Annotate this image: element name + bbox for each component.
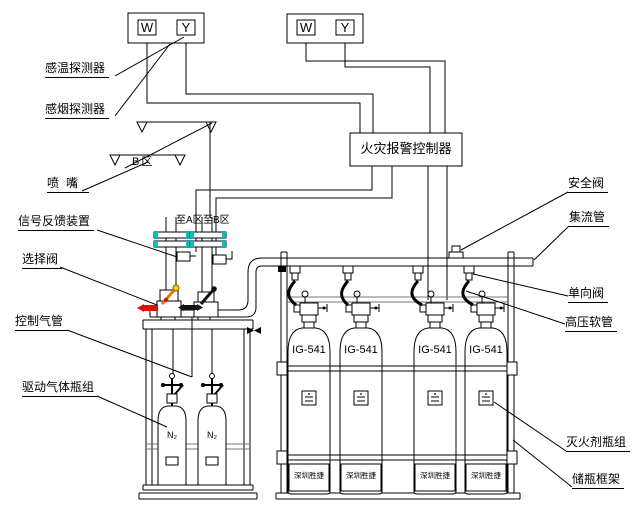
safety-valve xyxy=(449,246,463,258)
zone-b-label: B区 xyxy=(132,156,154,169)
control-tubes xyxy=(173,317,212,377)
callout-smoke-detector: 感烟探测器 xyxy=(45,103,109,119)
callout-signal-feedback: 信号反馈装置 xyxy=(18,215,94,231)
agent-cylinder-brand: 深圳胜捷 xyxy=(466,470,506,481)
zone-pipe-a xyxy=(154,217,196,290)
hp-hose xyxy=(289,281,296,305)
agent-cylinder-brand: 深圳胜捷 xyxy=(415,470,455,481)
hp-hose xyxy=(342,281,348,305)
callout-agent-cylinders: 灭火剂瓶组 xyxy=(566,436,630,452)
check-valve xyxy=(413,266,423,280)
selector-valve-a xyxy=(137,285,181,320)
callout-control-tube: 控制气管 xyxy=(15,315,67,331)
selector-valve-b xyxy=(178,286,218,320)
nozzle-manifolds xyxy=(110,122,216,217)
callout-safety-valve: 安全阀 xyxy=(568,177,608,193)
nozzle-icon xyxy=(110,155,120,165)
hp-hose xyxy=(412,281,422,305)
n2-cylinder-label: N₂ xyxy=(198,430,226,440)
signal-feedback-device xyxy=(177,252,190,261)
agent-cylinder-name: IG-541 xyxy=(414,344,456,356)
agent-cylinder-name: IG-541 xyxy=(465,344,507,356)
check-valve xyxy=(290,266,300,280)
check-valves-and-hoses xyxy=(289,266,474,305)
n2-valve xyxy=(161,374,183,407)
wiring xyxy=(147,35,447,300)
to-zone-b-label: 至B区 xyxy=(203,215,230,227)
n2-cylinder-label: N₂ xyxy=(158,430,186,440)
callout-cylinder-frame: 储瓶框架 xyxy=(572,473,624,489)
signal-feedback-device xyxy=(213,255,226,264)
controller-label: 火灾报警控制器 xyxy=(350,133,462,166)
agent-cylinder-name: IG-541 xyxy=(288,344,330,356)
nozzle-icon xyxy=(175,155,185,165)
heat-detector-symbol: W xyxy=(297,20,315,35)
smoke-detector-symbol: Y xyxy=(336,20,354,35)
callout-drive-gas-cylinders: 驱动气体瓶组 xyxy=(22,381,98,397)
nozzle-icon xyxy=(137,122,147,132)
heat-detector-symbol: W xyxy=(138,20,156,35)
agent-cylinder-brand: 深圳胜捷 xyxy=(289,470,329,481)
callout-nozzle: 喷嘴 xyxy=(47,177,89,193)
callout-hp-hose: 高压软管 xyxy=(565,316,617,332)
to-zone-a-label: 至A区 xyxy=(176,215,203,227)
callout-check-valve: 单向阀 xyxy=(568,287,608,303)
smoke-detector-symbol: Y xyxy=(177,20,195,35)
agent-cylinder-name: IG-541 xyxy=(340,344,382,356)
n2-valve xyxy=(201,374,223,407)
agent-cylinder-brand: 深圳胜捷 xyxy=(341,470,381,481)
check-valve xyxy=(464,266,474,280)
callout-collecting-pipe: 集流管 xyxy=(569,211,609,227)
fire-suppression-system-diagram: W Y W Y 火灾报警控制器 B区 至A区 至B区 感温探测器 感烟探测器 喷… xyxy=(0,0,641,508)
callout-selector-valve: 选择阀 xyxy=(22,253,62,269)
check-valve xyxy=(343,266,353,280)
callout-heat-detector: 感温探测器 xyxy=(45,62,109,78)
